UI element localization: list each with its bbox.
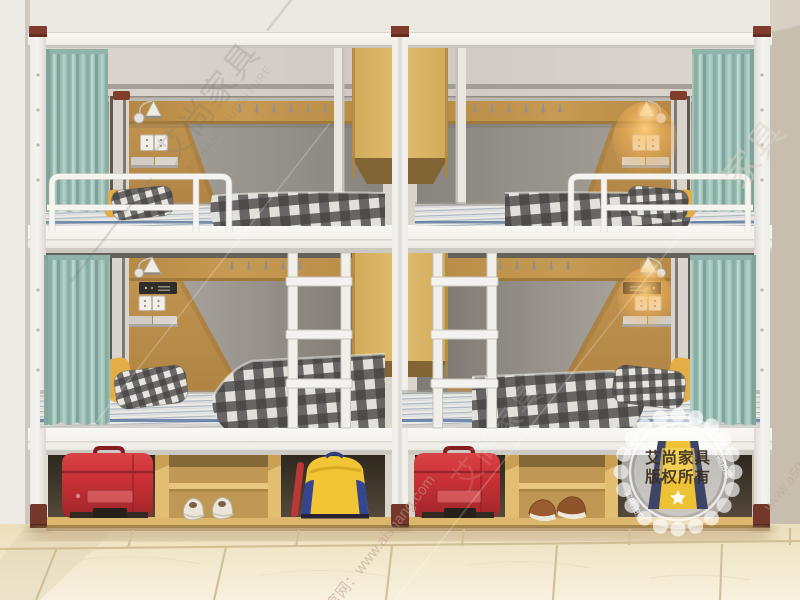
svg-text:版权所有: 版权所有 xyxy=(644,467,711,486)
svg-text:精品家具: 精品家具 xyxy=(660,424,692,434)
svg-text:艾尚家具: 艾尚家具 xyxy=(645,448,711,467)
